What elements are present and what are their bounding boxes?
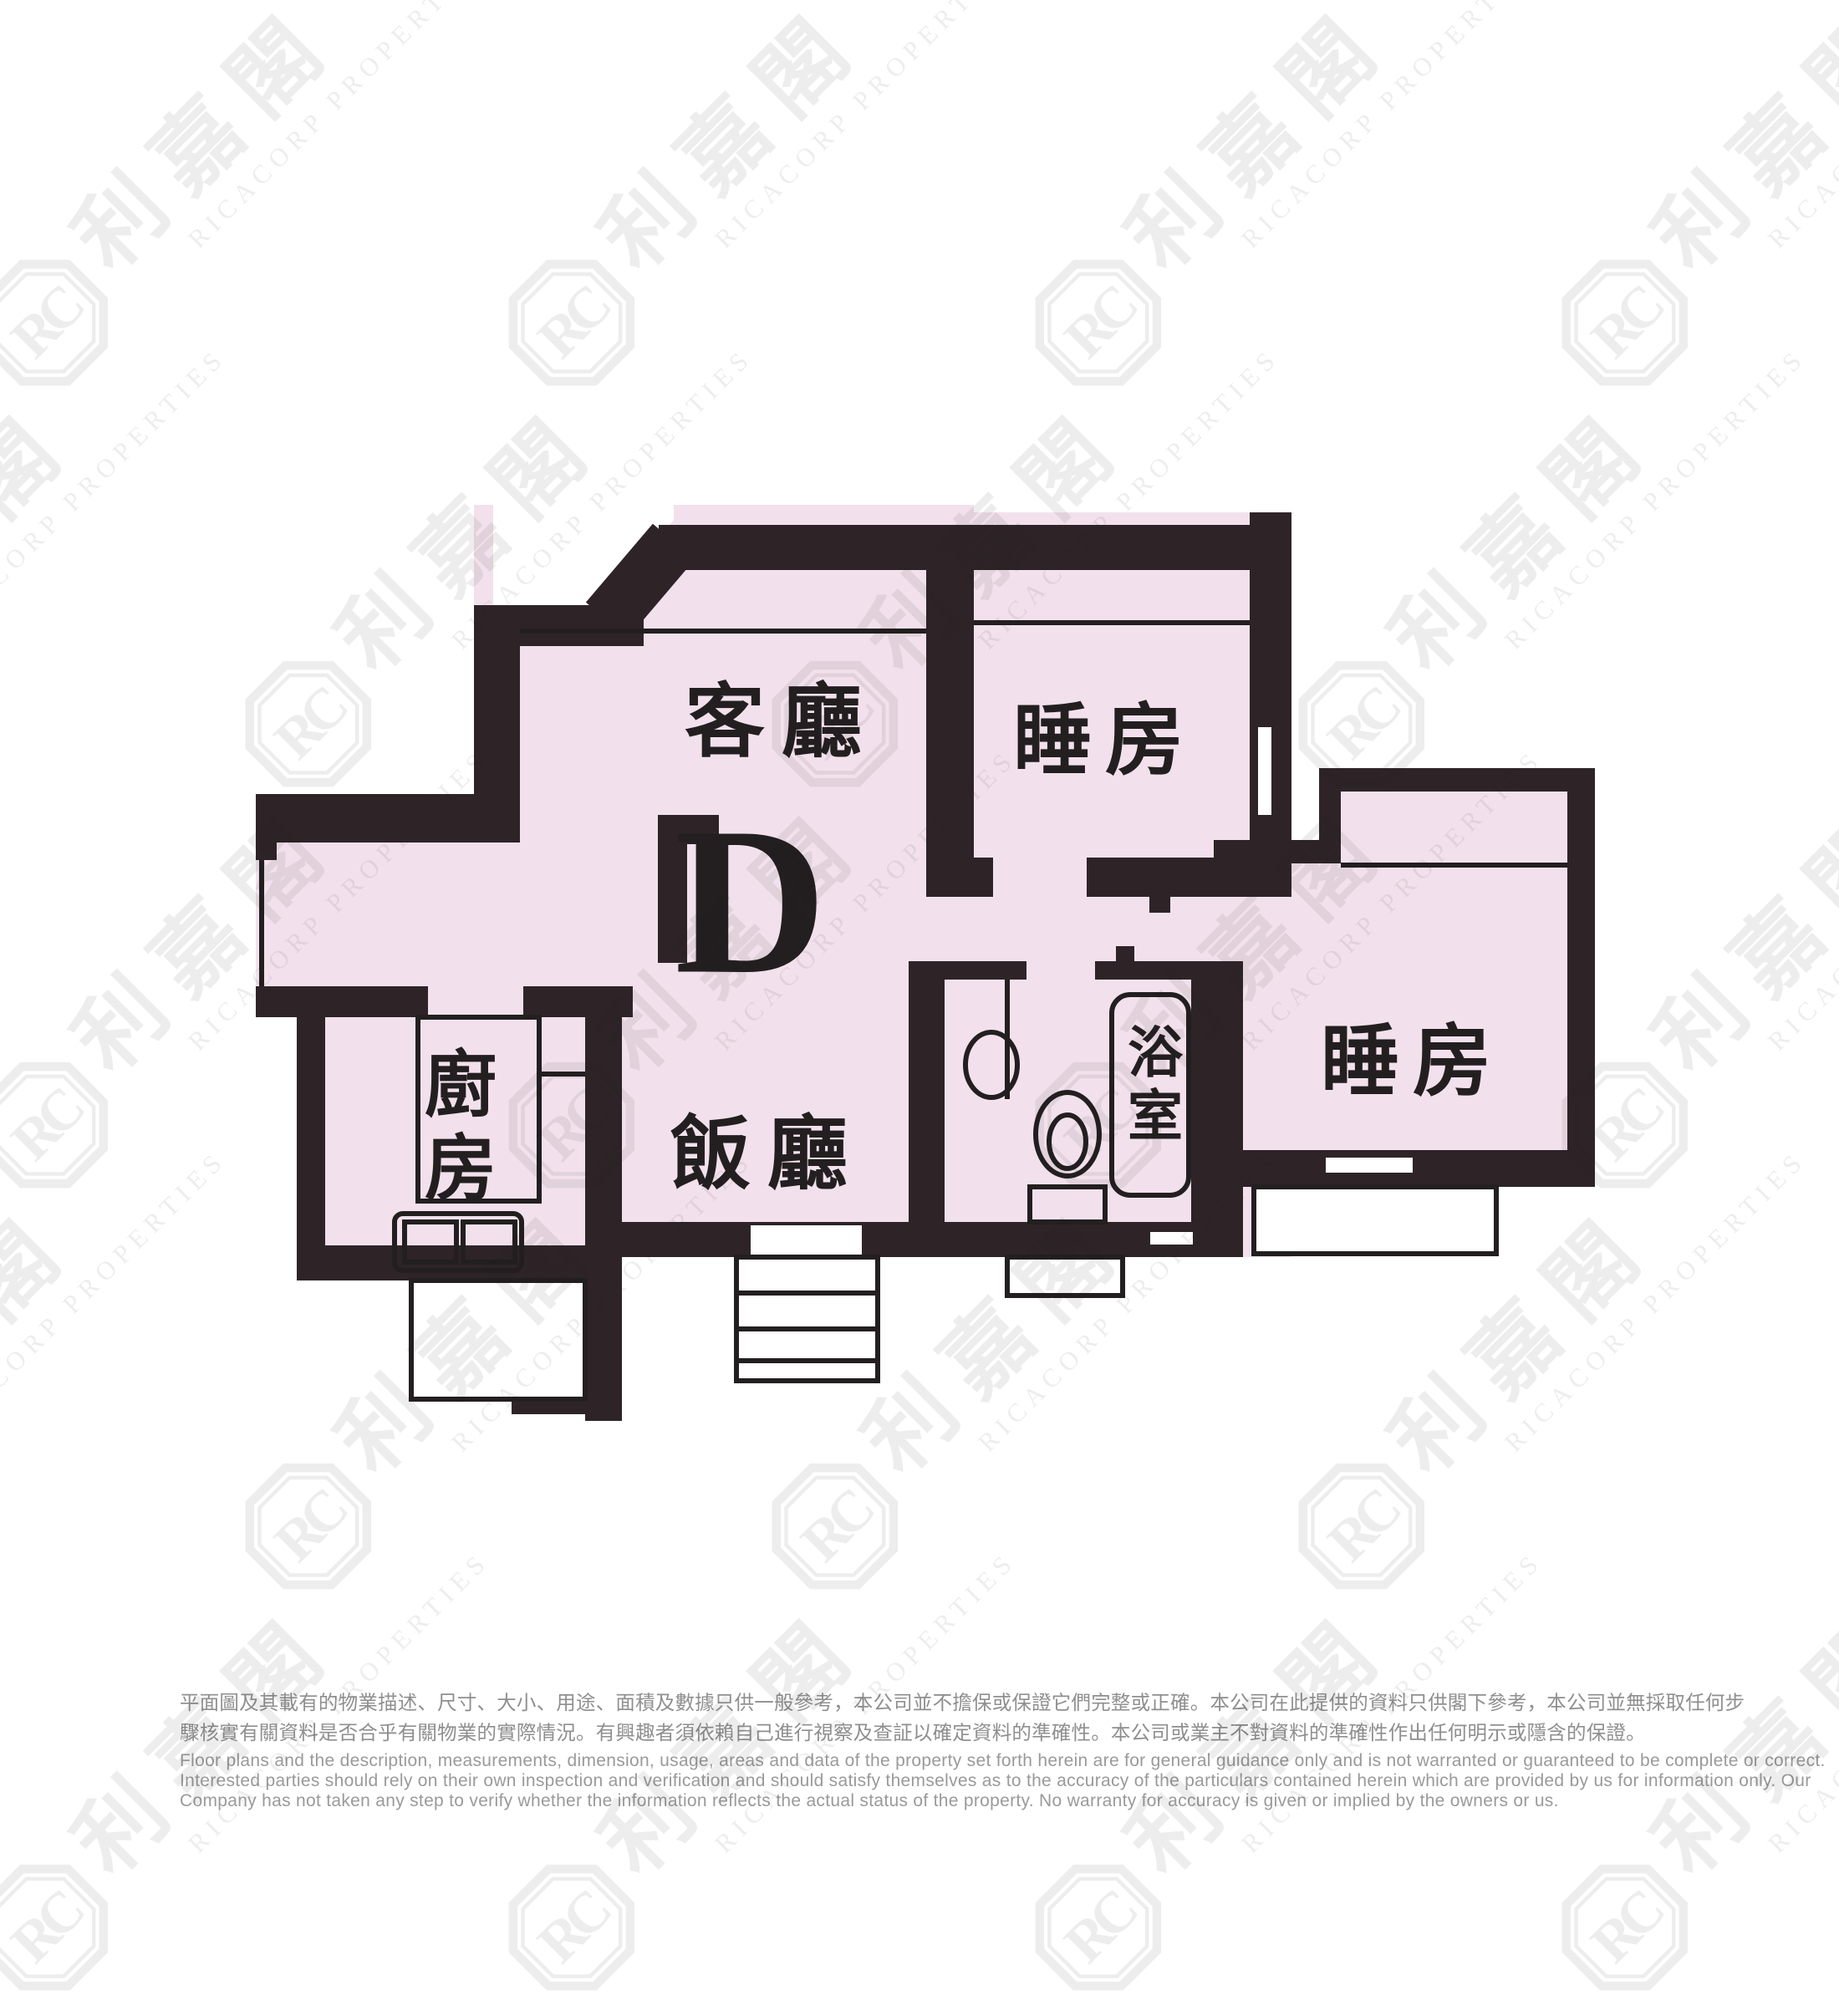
wall-bed2-top xyxy=(1319,768,1595,792)
wall-living-bed1-separator xyxy=(926,570,974,858)
wall-bed1-bottom xyxy=(1087,858,1291,897)
wall-kitchen-right xyxy=(585,986,622,1421)
wall-left-stub xyxy=(256,843,277,860)
wall-bathtub-top xyxy=(1095,961,1191,980)
ricacorp-badge-icon: RC xyxy=(1536,1839,1714,2016)
wall-kitchen-left xyxy=(297,986,325,1280)
svg-text:RC: RC xyxy=(0,1879,94,1974)
svg-text:RC: RC xyxy=(1579,1879,1674,1974)
label-living-room: 客廳 xyxy=(685,657,879,773)
platform-below-kitchen xyxy=(411,1280,585,1399)
wall-dining-bath-separator xyxy=(909,961,945,1257)
window-slot-bedroom-top xyxy=(1258,727,1271,815)
label-bedroom-top: 睡房 xyxy=(1013,677,1197,791)
disclaimer-en-line1: Floor plans and the description, measure… xyxy=(180,1751,1826,1771)
ricacorp-badge-icon: RC xyxy=(483,1839,660,2016)
wall-corridor-stub xyxy=(926,858,993,897)
wall-bed2-right xyxy=(1567,768,1595,1187)
platform-below-bathroom xyxy=(1007,1257,1123,1296)
unit-letter: D xyxy=(675,780,827,1023)
entrance-door-recess xyxy=(751,1225,862,1257)
platform-below-bedroom-right xyxy=(1254,1187,1496,1254)
disclaimer-en-line3: Company has not taken any step to verify… xyxy=(180,1791,1559,1811)
disclaimer-zh-line1: 平面圖及其載有的物業描述、尺寸、大小、用途、面積及數據只供一般參考，本公司並不擔… xyxy=(180,1687,1745,1715)
wall-bath-door-stub xyxy=(1116,946,1134,961)
label-dining-room: 飯廳 xyxy=(670,1089,864,1205)
floor-plan-drawing xyxy=(0,0,1839,1839)
wall-basin-alcove-top xyxy=(945,961,1026,980)
window-slot-bedroom-right xyxy=(1326,1158,1413,1173)
wall-top xyxy=(659,525,1291,570)
wall-hall-top xyxy=(256,794,520,843)
ricacorp-badge-icon: RC xyxy=(1010,1839,1187,2016)
label-bedroom-right: 睡房 xyxy=(1321,998,1505,1112)
label-kitchen: 廚房 xyxy=(402,1046,507,1214)
disclaimer-en-line2: Interested parties should rely on their … xyxy=(180,1771,1811,1791)
disclaimer-zh-line2: 驟核實有關資料是否合乎有關物業的實際情況。有興趣者須依賴自己進行視察及查証以確定… xyxy=(180,1717,1646,1745)
floor-plan-page: { "floor_plan": { "unit_label": "D", "ro… xyxy=(0,0,1839,1839)
wall-kitchen-bottom xyxy=(297,1245,622,1280)
wall-door-stop xyxy=(1149,897,1170,913)
svg-text:RC: RC xyxy=(1052,1879,1148,1974)
svg-text:RC: RC xyxy=(526,1879,621,1974)
label-bathroom: 浴室 xyxy=(1111,1023,1191,1150)
window-slot-bathroom xyxy=(1150,1232,1193,1245)
wall-kitchen-top-left xyxy=(256,986,428,1017)
ricacorp-badge-icon: RC xyxy=(0,1839,134,2016)
